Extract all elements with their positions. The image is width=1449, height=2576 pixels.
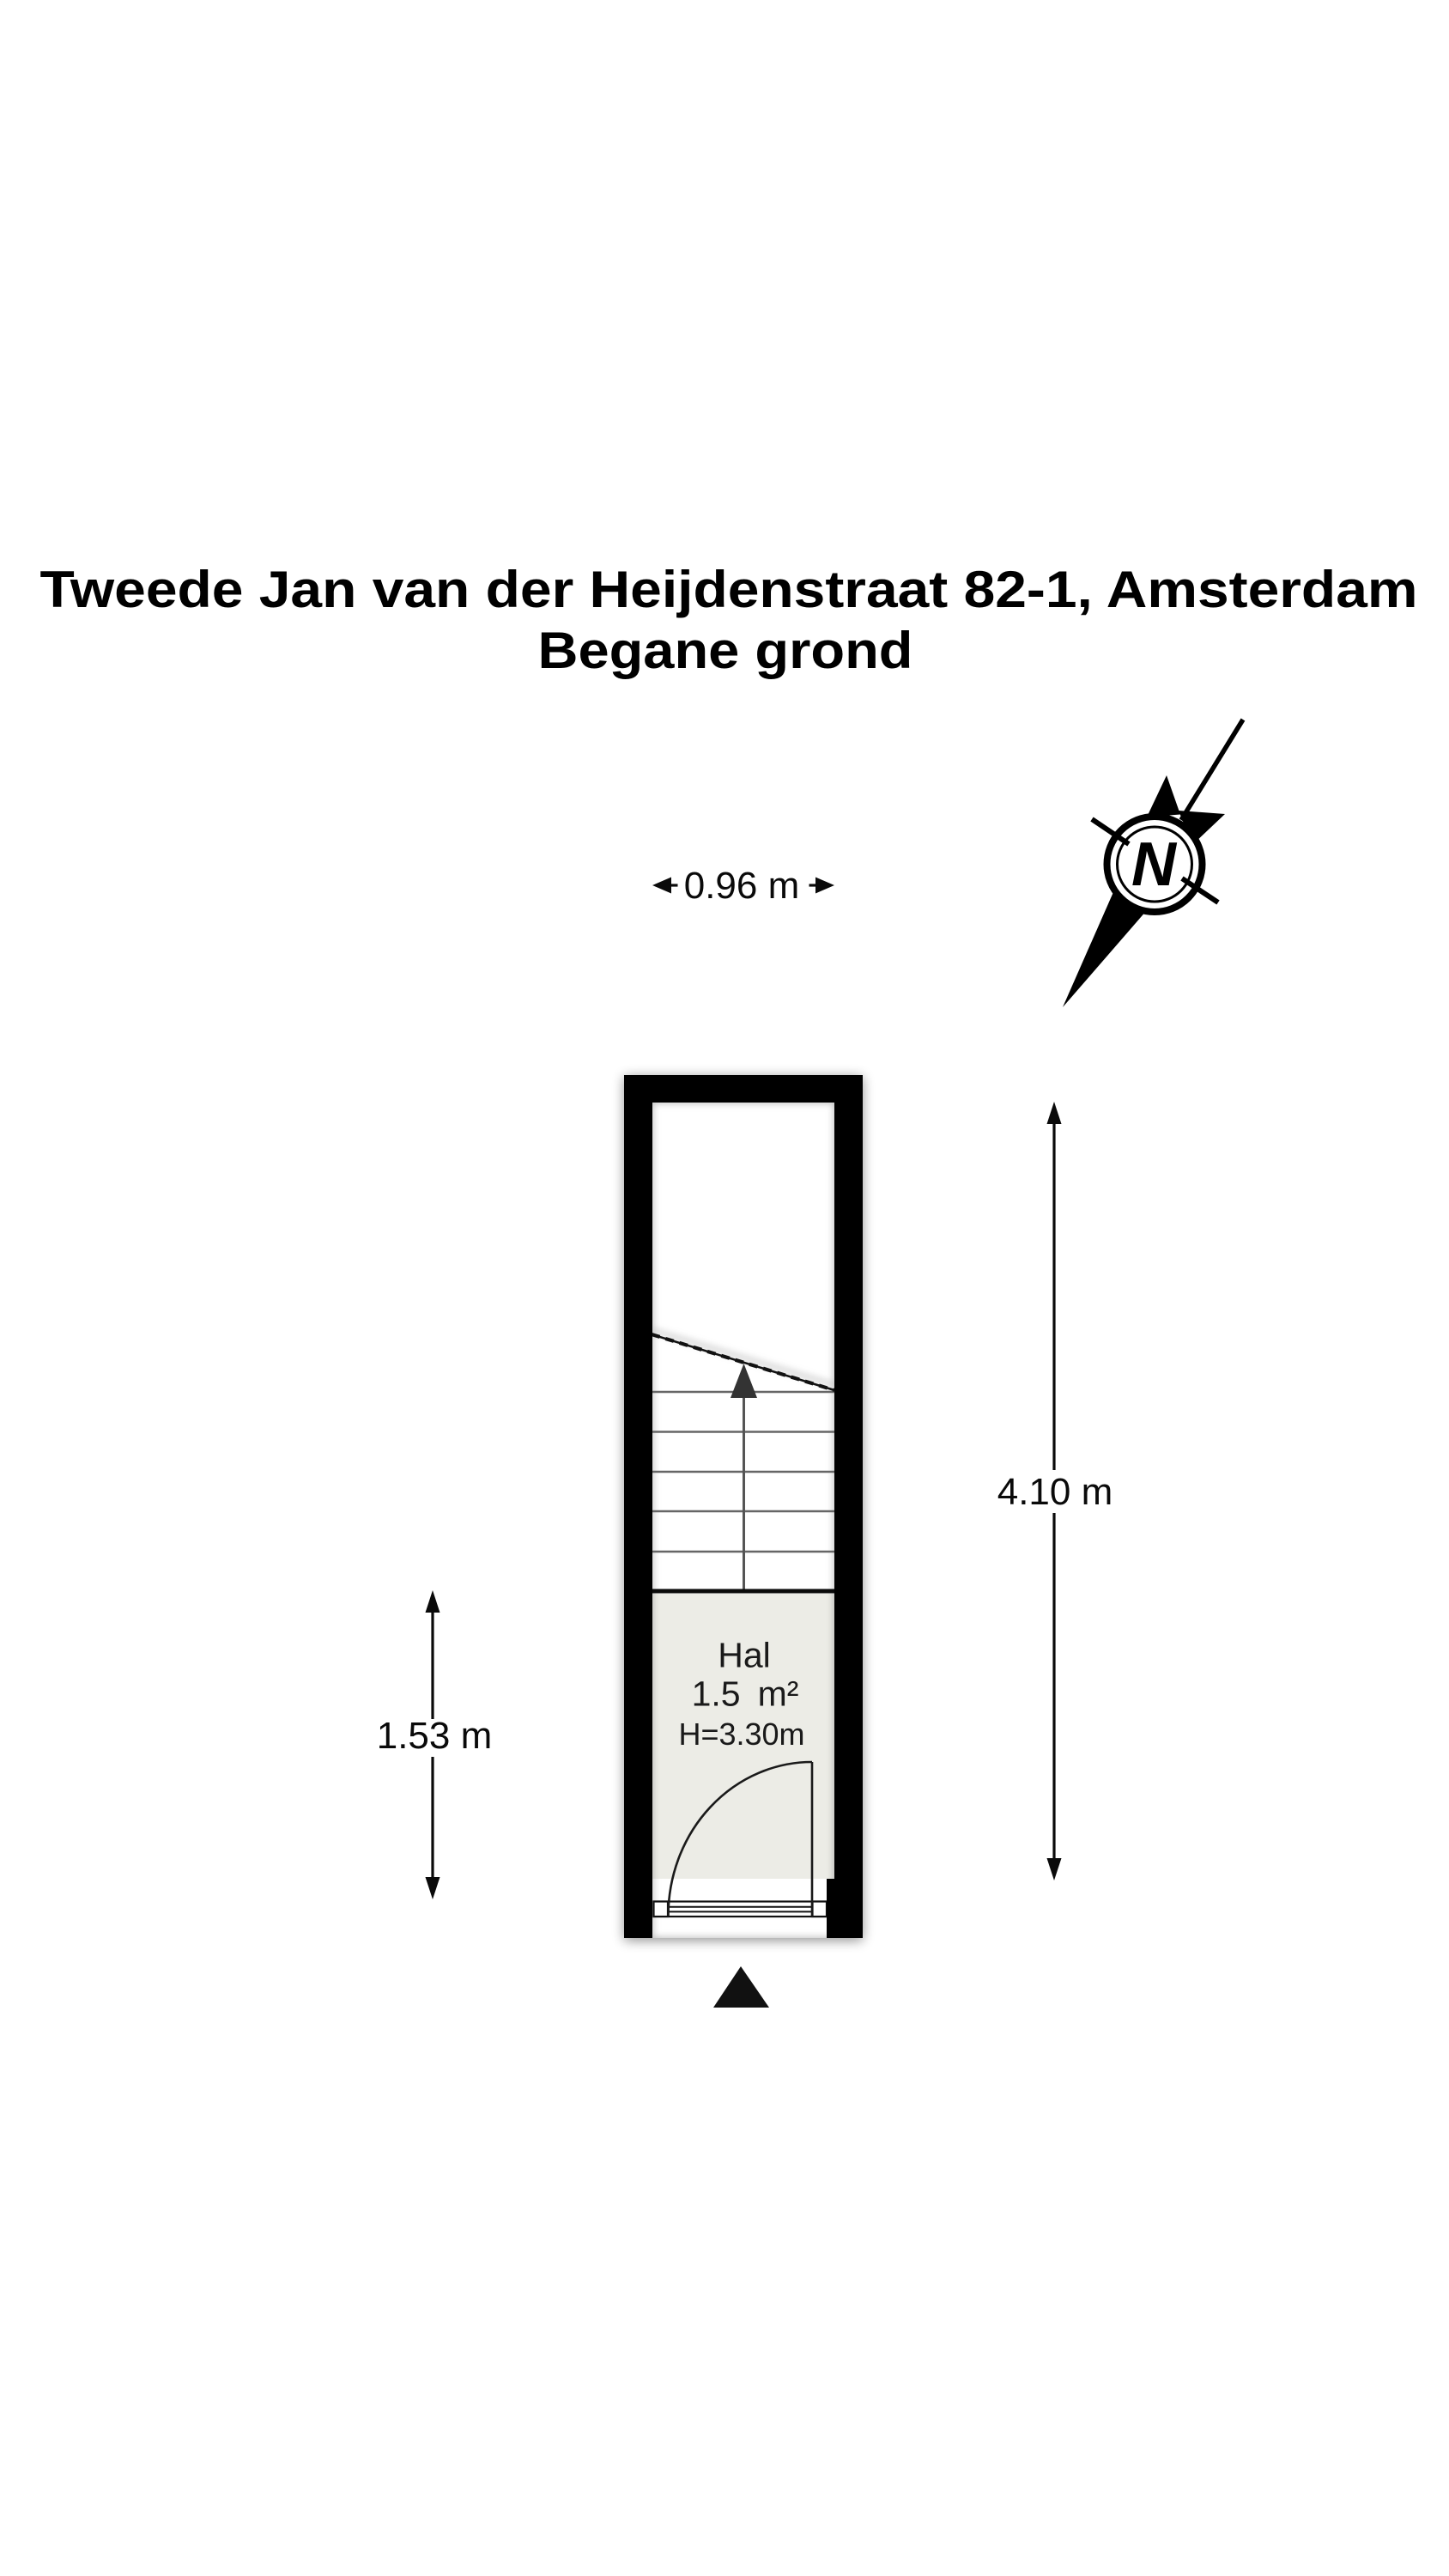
svg-text:Begane grond: Begane grond xyxy=(538,622,913,679)
svg-text:4.10 m: 4.10 m xyxy=(997,1471,1113,1513)
svg-text:0.96 m: 0.96 m xyxy=(684,865,800,907)
svg-text:H=3.30m: H=3.30m xyxy=(678,1716,804,1752)
svg-text:Tweede Jan van der Heijdenstra: Tweede Jan van der Heijdenstraat 82-1, A… xyxy=(40,561,1418,618)
svg-text:N: N xyxy=(1131,830,1178,899)
svg-text:1.53 m: 1.53 m xyxy=(377,1715,493,1757)
svg-text:Hal: Hal xyxy=(718,1636,771,1675)
